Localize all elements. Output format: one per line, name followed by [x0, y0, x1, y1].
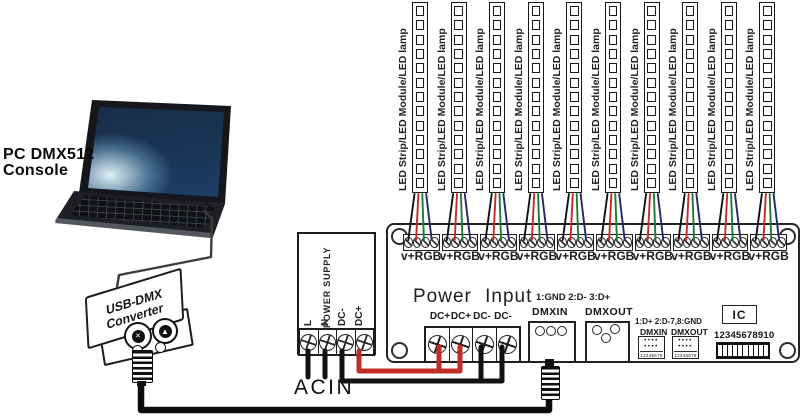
- led-strip-label: LED Strip/LED Module/LED lamp: [474, 2, 488, 191]
- led-cell: [570, 6, 579, 16]
- led-cell: [609, 106, 618, 116]
- led-cell: [763, 20, 772, 30]
- led-cell: [532, 164, 541, 174]
- led-cell: [416, 35, 425, 45]
- xlr-female-icon: ✕: [132, 330, 145, 343]
- led-cell: [454, 121, 463, 131]
- dmxin-cable-plug: [541, 366, 560, 400]
- led-cell: [532, 6, 541, 16]
- terminal-screw-icon: [674, 237, 683, 248]
- terminal-screw-icon: [443, 237, 452, 248]
- led-cell: [647, 164, 656, 174]
- led-cell: [493, 121, 502, 131]
- led-strip: [489, 2, 505, 193]
- screw-icon: [472, 333, 496, 357]
- power-supply-title: POWER SUPPLY: [322, 236, 338, 328]
- led-cell: [416, 20, 425, 30]
- led-cell: [686, 78, 695, 88]
- terminal-screw-icon: [528, 237, 537, 248]
- led-cell: [570, 164, 579, 174]
- led-cell: [493, 49, 502, 59]
- led-strip: [682, 2, 698, 193]
- led-strip: [566, 2, 582, 193]
- terminal-screw-icon: [661, 237, 670, 248]
- terminal-screw-icon: [691, 237, 700, 248]
- led-cell: [763, 135, 772, 145]
- led-cell: [532, 121, 541, 131]
- power-supply-terminal-block: [298, 328, 375, 356]
- power-input-title: Power Input: [413, 286, 532, 308]
- led-cell: [454, 164, 463, 174]
- led-cell: [686, 106, 695, 116]
- dmxin-connector: [528, 321, 576, 363]
- board-terminal-dc-plus-2: [449, 328, 473, 361]
- led-cell: [725, 149, 734, 159]
- acin-label: ACIN: [294, 376, 354, 400]
- board-terminal-dc-minus-2: [496, 328, 520, 361]
- terminal-screw-icon: [520, 237, 529, 248]
- led-cell: [416, 106, 425, 116]
- led-cell: [454, 49, 463, 59]
- terminal-screw-icon: [430, 237, 439, 248]
- led-strip-label: LED Strip/LED Module/LED lamp: [744, 2, 758, 191]
- screw-icon: [335, 331, 356, 352]
- terminal-screw-icon: [490, 237, 499, 248]
- screw-icon: [449, 333, 473, 357]
- wiring-diagram: PC DMX512 Console USB-DMX Converter ✕ ▲ …: [0, 0, 800, 418]
- led-cell: [570, 149, 579, 159]
- led-strip-label: LED Strip/LED Module/LED lamp: [590, 2, 604, 191]
- pc-console-label-line1: PC DMX512: [3, 147, 95, 163]
- led-cell: [532, 78, 541, 88]
- led-strip-label: LED Strip/LED Module/LED lamp: [706, 2, 720, 191]
- led-cell: [493, 92, 502, 102]
- led-cell: [763, 78, 772, 88]
- led-cell: [493, 106, 502, 116]
- led-cell: [686, 135, 695, 145]
- dmx-cable-plug-tip: [137, 381, 146, 386]
- terminal-screw-icon: [730, 237, 739, 248]
- led-cell: [570, 35, 579, 45]
- led-cell: [493, 20, 502, 30]
- led-cell: [493, 6, 502, 16]
- led-cell: [532, 35, 541, 45]
- led-cell: [609, 63, 618, 73]
- led-strip-label: LED Strip/LED Module/LED lamp: [436, 2, 450, 191]
- led-cell: [454, 63, 463, 73]
- led-cell: [647, 6, 656, 16]
- led-cell: [686, 149, 695, 159]
- led-cell: [609, 164, 618, 174]
- led-cell: [493, 149, 502, 159]
- led-cell: [493, 178, 502, 188]
- led-cell: [416, 178, 425, 188]
- led-cell: [454, 178, 463, 188]
- led-cell: [647, 121, 656, 131]
- pin-hole: [557, 326, 567, 336]
- dmxin-label: DMXIN: [532, 306, 568, 318]
- pin-hole: [535, 326, 545, 336]
- ic-label: IC: [733, 308, 747, 322]
- led-strip: [451, 2, 467, 193]
- led-cell: [647, 178, 656, 188]
- ps-terminal-dc-minus: [336, 330, 355, 354]
- terminal-screw-icon: [468, 237, 477, 248]
- led-cell: [725, 92, 734, 102]
- led-cell: [725, 6, 734, 16]
- screw-icon: [354, 331, 375, 352]
- led-strip: [605, 2, 621, 193]
- led-cell: [416, 63, 425, 73]
- terminal-screw-icon: [558, 237, 567, 248]
- terminal-screw-icon: [481, 237, 490, 248]
- dmxout-connector: [585, 321, 630, 363]
- led-cell: [725, 35, 734, 45]
- led-cell: [493, 164, 502, 174]
- dip-switch-slot: [763, 345, 768, 356]
- ps-terminal-l: [300, 330, 318, 354]
- led-cell: [416, 49, 425, 59]
- pc-console-label: PC DMX512 Console: [3, 147, 95, 179]
- led-cell: [416, 92, 425, 102]
- led-cell: [609, 178, 618, 188]
- led-cell: [647, 92, 656, 102]
- terminal-screw-icon: [653, 237, 662, 248]
- led-cell: [647, 63, 656, 73]
- converter-screw-hole: [155, 342, 166, 353]
- led-cell: [725, 63, 734, 73]
- ps-terminal-label-dcm: DC-: [337, 308, 348, 326]
- led-cell: [416, 164, 425, 174]
- led-cell: [570, 121, 579, 131]
- terminal-screw-icon: [777, 237, 786, 248]
- pin-hole: [610, 324, 620, 334]
- led-strip-label: LED Strip/LED Module/LED lamp: [667, 2, 681, 191]
- led-cell: [454, 92, 463, 102]
- led-cell: [763, 6, 772, 16]
- led-strip-label: LED Strip/LED Module/LED lamp: [513, 2, 527, 191]
- terminal-screw-icon: [413, 237, 422, 248]
- led-cell: [647, 106, 656, 116]
- terminal-screw-icon: [597, 237, 606, 248]
- led-cell: [763, 178, 772, 188]
- led-cell: [647, 78, 656, 88]
- mounting-hole: [779, 342, 796, 359]
- terminal-screw-icon: [739, 237, 748, 248]
- terminal-screw-icon: [721, 237, 730, 248]
- rgb-output-label: v+RGB: [478, 249, 516, 263]
- led-cell: [570, 49, 579, 59]
- led-strip-label: LED Strip/LED Module/LED lamp: [629, 2, 643, 191]
- pc-console-label-line2: Console: [3, 163, 95, 179]
- rgb-output-label: v+RGB: [594, 249, 632, 263]
- terminal-screw-icon: [614, 237, 623, 248]
- pin-dots-icon: ••••: [644, 339, 658, 343]
- terminal-screw-icon: [404, 237, 413, 248]
- led-cell: [570, 20, 579, 30]
- rj45-dmxout-jack: •••• •••• 12345678: [672, 336, 699, 359]
- ps-terminal-dc-plus: [355, 330, 374, 354]
- led-cell: [725, 164, 734, 174]
- led-cell: [532, 92, 541, 102]
- led-cell: [570, 178, 579, 188]
- led-cell: [725, 135, 734, 145]
- terminal-screw-icon: [546, 237, 555, 248]
- dip-switch: [716, 342, 770, 359]
- screw-icon: [317, 331, 338, 352]
- led-cell: [725, 178, 734, 188]
- rgb-output-label: v+RGB: [748, 249, 786, 263]
- screw-icon: [496, 333, 520, 357]
- led-strip: [759, 2, 775, 193]
- terminal-screw-icon: [623, 237, 632, 248]
- ps-terminal-label-n: N: [320, 319, 331, 326]
- dmx-cable-plug: [132, 350, 153, 383]
- led-strip: [412, 2, 428, 193]
- terminal-screw-icon: [451, 237, 460, 248]
- led-cell: [532, 149, 541, 159]
- led-cell: [532, 20, 541, 30]
- terminal-screw-icon: [498, 237, 507, 248]
- led-cell: [493, 78, 502, 88]
- screw-icon: [298, 331, 319, 352]
- led-cell: [686, 63, 695, 73]
- led-cell: [647, 20, 656, 30]
- pin-dots-icon: ••••: [644, 345, 658, 349]
- led-cell: [454, 149, 463, 159]
- terminal-screw-icon: [421, 237, 430, 248]
- led-cell: [763, 63, 772, 73]
- led-cell: [647, 49, 656, 59]
- led-cell: [647, 149, 656, 159]
- led-strip-label: LED Strip/LED Module/LED lamp: [551, 2, 565, 191]
- terminal-screw-icon: [713, 237, 722, 248]
- led-cell: [570, 78, 579, 88]
- terminal-screw-icon: [700, 237, 709, 248]
- led-cell: [763, 35, 772, 45]
- board-terminal-dc-minus-1: [472, 328, 496, 361]
- dmxout-label: DMXOUT: [585, 306, 633, 318]
- pin-dots-icon: ••••: [678, 345, 692, 349]
- led-strip-label: LED Strip/LED Module/LED lamp: [397, 2, 411, 191]
- led-cell: [570, 92, 579, 102]
- ps-terminal-n: [318, 330, 337, 354]
- led-cell: [686, 20, 695, 30]
- led-cell: [532, 135, 541, 145]
- led-cell: [647, 35, 656, 45]
- ic-chip: IC: [722, 305, 757, 324]
- led-cell: [725, 106, 734, 116]
- terminal-screw-icon: [769, 237, 778, 248]
- terminal-screw-icon: [683, 237, 692, 248]
- led-cell: [416, 121, 425, 131]
- led-cell: [609, 121, 618, 131]
- led-cell: [416, 135, 425, 145]
- terminal-screw-icon: [460, 237, 469, 248]
- led-cell: [609, 20, 618, 30]
- terminal-screw-icon: [576, 237, 585, 248]
- led-cell: [454, 78, 463, 88]
- terminal-screw-icon: [760, 237, 769, 248]
- terminal-screw-icon: [636, 237, 645, 248]
- led-cell: [532, 106, 541, 116]
- led-strip: [644, 2, 660, 193]
- led-cell: [686, 49, 695, 59]
- led-cell: [454, 20, 463, 30]
- board-terminal-dc-plus-1: [426, 328, 449, 361]
- led-cell: [763, 149, 772, 159]
- rj45-pin-numbers: 12345678: [674, 351, 696, 358]
- led-cell: [609, 92, 618, 102]
- led-cell: [493, 135, 502, 145]
- led-cell: [763, 49, 772, 59]
- led-cell: [570, 135, 579, 145]
- xlr-male-connector: ▲: [152, 318, 178, 344]
- pin-dots-icon: ••••: [678, 339, 692, 343]
- led-strip: [721, 2, 737, 193]
- led-cell: [725, 49, 734, 59]
- pin-hole: [546, 326, 556, 336]
- led-cell: [532, 49, 541, 59]
- led-cell: [647, 135, 656, 145]
- led-cell: [686, 121, 695, 131]
- led-cell: [532, 178, 541, 188]
- led-cell: [493, 35, 502, 45]
- led-cell: [454, 35, 463, 45]
- led-cell: [686, 92, 695, 102]
- led-cell: [763, 106, 772, 116]
- pin-hole: [601, 333, 611, 343]
- led-cell: [609, 78, 618, 88]
- led-cell: [416, 149, 425, 159]
- led-cell: [416, 78, 425, 88]
- led-cell: [686, 35, 695, 45]
- screw-icon: [425, 333, 449, 357]
- terminal-screw-icon: [537, 237, 546, 248]
- rj45-pin-numbers: 12345678: [640, 351, 662, 358]
- terminal-screw-icon: [507, 237, 516, 248]
- rgb-output-label: v+RGB: [671, 249, 709, 263]
- rj45-dmxin-jack: •••• •••• 12345678: [638, 336, 665, 359]
- terminal-screw-icon: [751, 237, 760, 248]
- led-cell: [686, 164, 695, 174]
- led-cell: [493, 63, 502, 73]
- led-cell: [725, 20, 734, 30]
- led-cell: [570, 63, 579, 73]
- ps-terminal-label-dcp: DC+: [354, 306, 365, 326]
- led-cell: [609, 35, 618, 45]
- power-terminal-label: DC-: [489, 311, 517, 322]
- led-cell: [454, 106, 463, 116]
- led-cell: [725, 121, 734, 131]
- terminal-screw-icon: [606, 237, 615, 248]
- rgb-output-label: v+RGB: [555, 249, 593, 263]
- led-cell: [609, 135, 618, 145]
- terminal-screw-icon: [567, 237, 576, 248]
- led-cell: [763, 121, 772, 131]
- rgb-output-label: v+RGB: [440, 249, 478, 263]
- rgb-output-label: v+RGB: [633, 249, 671, 263]
- led-cell: [686, 6, 695, 16]
- led-cell: [454, 6, 463, 16]
- terminal-screw-icon: [584, 237, 593, 248]
- xlr-lock-icon: ▲: [159, 325, 172, 338]
- led-cell: [570, 106, 579, 116]
- ps-terminal-label-l: L: [303, 320, 314, 326]
- led-cell: [725, 78, 734, 88]
- led-cell: [763, 164, 772, 174]
- led-strip: [528, 2, 544, 193]
- mounting-hole: [391, 342, 408, 359]
- led-cell: [686, 178, 695, 188]
- led-cell: [416, 6, 425, 16]
- terminal-screw-icon: [644, 237, 653, 248]
- board-power-terminal-block: [424, 326, 521, 363]
- rgb-output-label: v+RGB: [517, 249, 555, 263]
- led-cell: [609, 6, 618, 16]
- rj45-pinout-label: 1:D+ 2:D-7,8:GND: [635, 317, 702, 326]
- led-cell: [532, 63, 541, 73]
- led-cell: [454, 135, 463, 145]
- led-cell: [609, 149, 618, 159]
- led-cell: [763, 92, 772, 102]
- dip-switch-numbers: 12345678910: [714, 330, 772, 341]
- dmx-pinout-label: 1:GND 2:D- 3:D+: [536, 292, 610, 303]
- led-cell: [609, 49, 618, 59]
- rgb-output-label: v+RGB: [401, 249, 439, 263]
- rgb-output-label: v+RGB: [710, 249, 748, 263]
- pin-hole: [592, 325, 602, 335]
